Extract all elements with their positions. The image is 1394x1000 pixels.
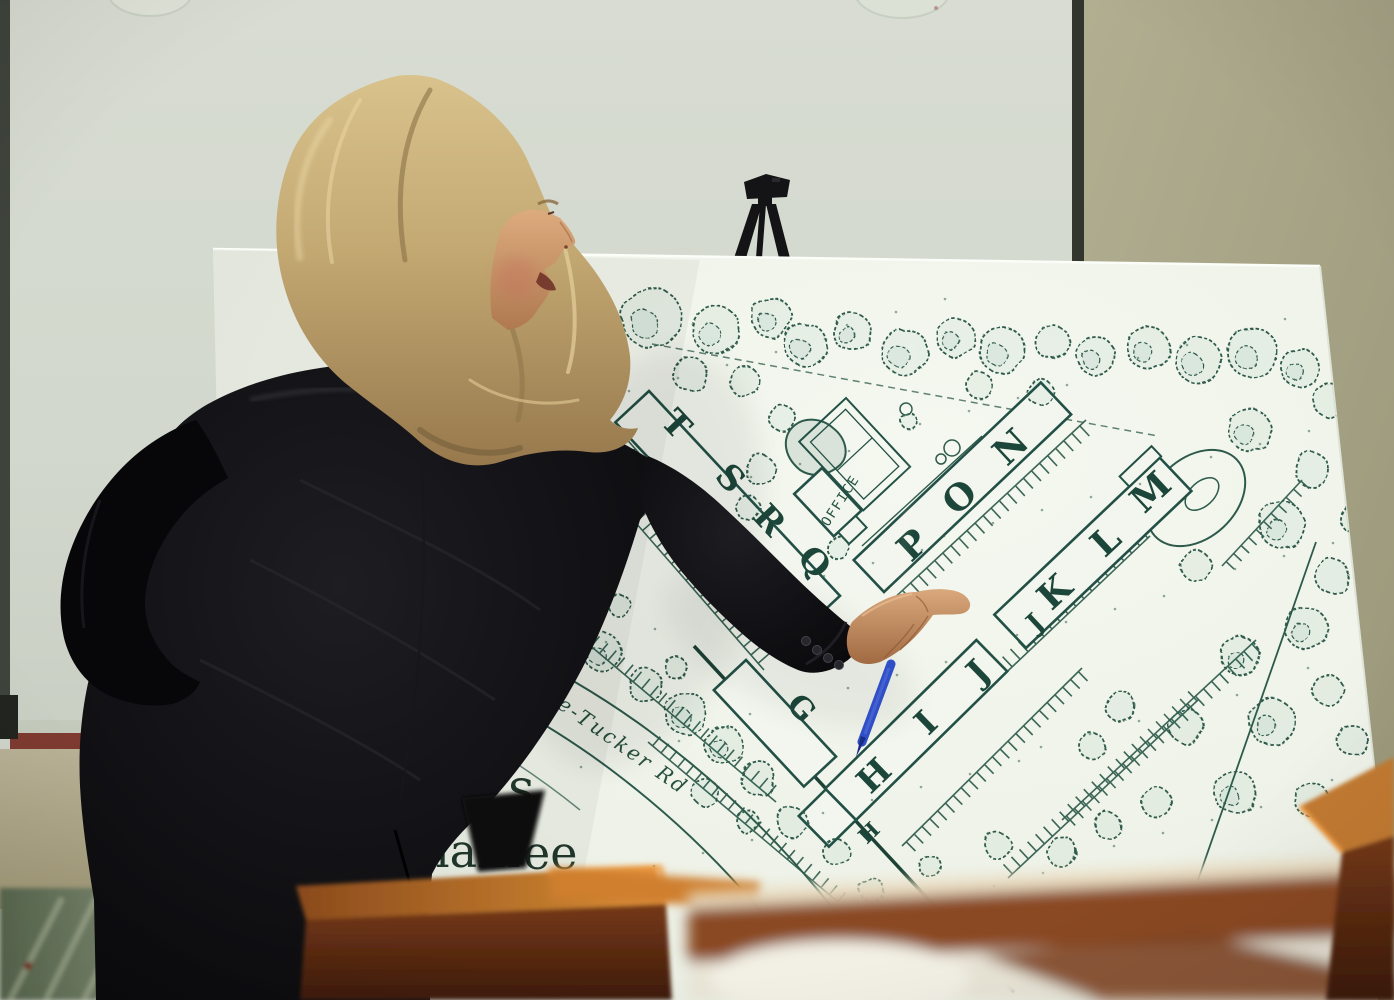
vignette — [0, 0, 1394, 1000]
courtroom-photo: T S R Q P O N J K L M H I J H G OFFICE m… — [0, 0, 1394, 1000]
